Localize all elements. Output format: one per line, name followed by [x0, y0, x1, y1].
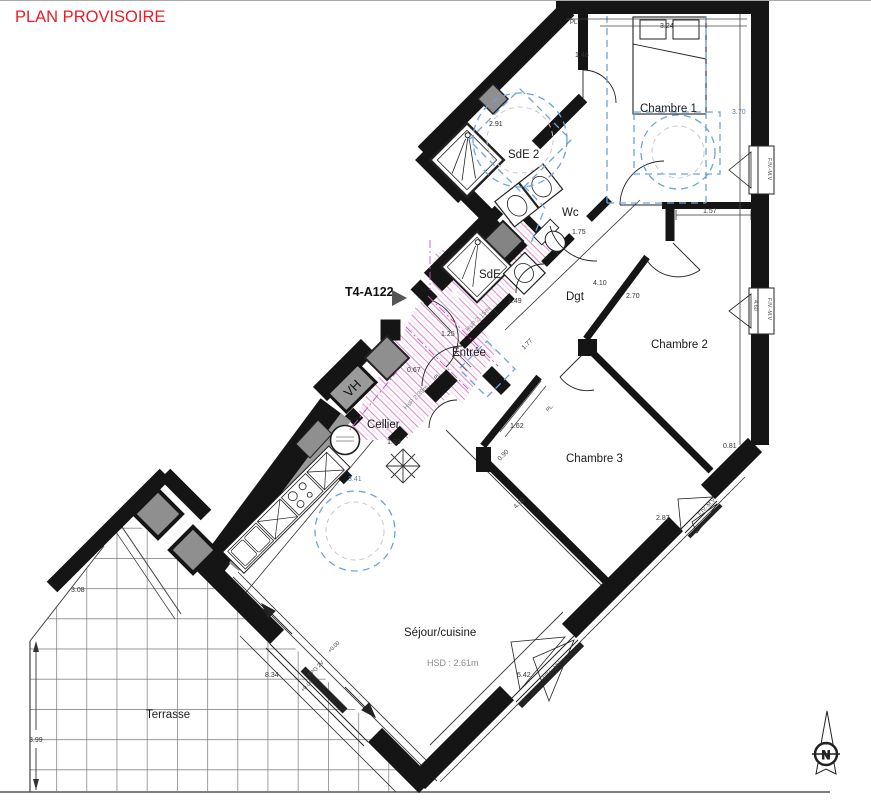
svg-text:4.10: 4.10 — [593, 280, 607, 287]
svg-text:4.60: 4.60 — [752, 300, 758, 311]
svg-text:1.48: 1.48 — [575, 52, 589, 59]
svg-text:Entrée: Entrée — [452, 347, 486, 359]
svg-text:Chambre 3: Chambre 3 — [566, 453, 623, 465]
svg-text:3.24: 3.24 — [660, 23, 674, 30]
svg-text:1.77: 1.77 — [520, 337, 534, 351]
svg-text:1.75: 1.75 — [572, 229, 586, 236]
svg-text:F.IV.-M.V: F.IV.-M.V — [766, 298, 772, 320]
svg-text:3.70: 3.70 — [732, 109, 746, 116]
svg-text:0.67: 0.67 — [407, 367, 421, 374]
svg-text:HSD : 2.61m: HSD : 2.61m — [427, 658, 479, 668]
svg-text:3.08: 3.08 — [71, 587, 85, 594]
svg-text:3.99: 3.99 — [29, 737, 43, 744]
svg-text:Chambre 1: Chambre 1 — [640, 103, 697, 115]
svg-text:8.34: 8.34 — [265, 672, 279, 679]
svg-text:5.42: 5.42 — [517, 672, 531, 679]
svg-text:2.91: 2.91 — [489, 121, 503, 128]
svg-text:1.57: 1.57 — [703, 208, 717, 215]
svg-text:PL.: PL. — [570, 20, 579, 26]
svg-text:Terrasse: Terrasse — [146, 709, 190, 721]
svg-text:F2V - MV: F2V - MV — [542, 661, 563, 682]
svg-text:Wc: Wc — [562, 207, 579, 219]
svg-text:1.25: 1.25 — [441, 331, 455, 338]
svg-text:1.93: 1.93 — [387, 439, 401, 446]
svg-text:T4-A122: T4-A122 — [345, 285, 394, 299]
svg-text:F.IV.-M.V: F.IV.-M.V — [766, 158, 772, 180]
svg-text:1.62: 1.62 — [510, 423, 524, 430]
svg-text:Dgt: Dgt — [566, 291, 585, 303]
svg-text:Chambre 2: Chambre 2 — [651, 339, 708, 351]
svg-text:Cellier: Cellier — [367, 419, 400, 431]
svg-text:1.49: 1.49 — [508, 298, 522, 305]
svg-text:N: N — [822, 748, 831, 762]
svg-text:3.41: 3.41 — [348, 476, 362, 483]
svg-text:2.70: 2.70 — [626, 293, 640, 300]
svg-text:0.90: 0.90 — [496, 448, 510, 462]
svg-text:Séjour/cuisine: Séjour/cuisine — [404, 627, 476, 639]
svg-text:0.81: 0.81 — [723, 443, 737, 450]
svg-text:PL.: PL. — [545, 403, 555, 413]
svg-text:SdE 2: SdE 2 — [508, 149, 539, 161]
svg-text:2.87: 2.87 — [656, 515, 670, 522]
svg-text:+0.00: +0.00 — [327, 640, 341, 654]
svg-text:SdE: SdE — [479, 269, 501, 281]
